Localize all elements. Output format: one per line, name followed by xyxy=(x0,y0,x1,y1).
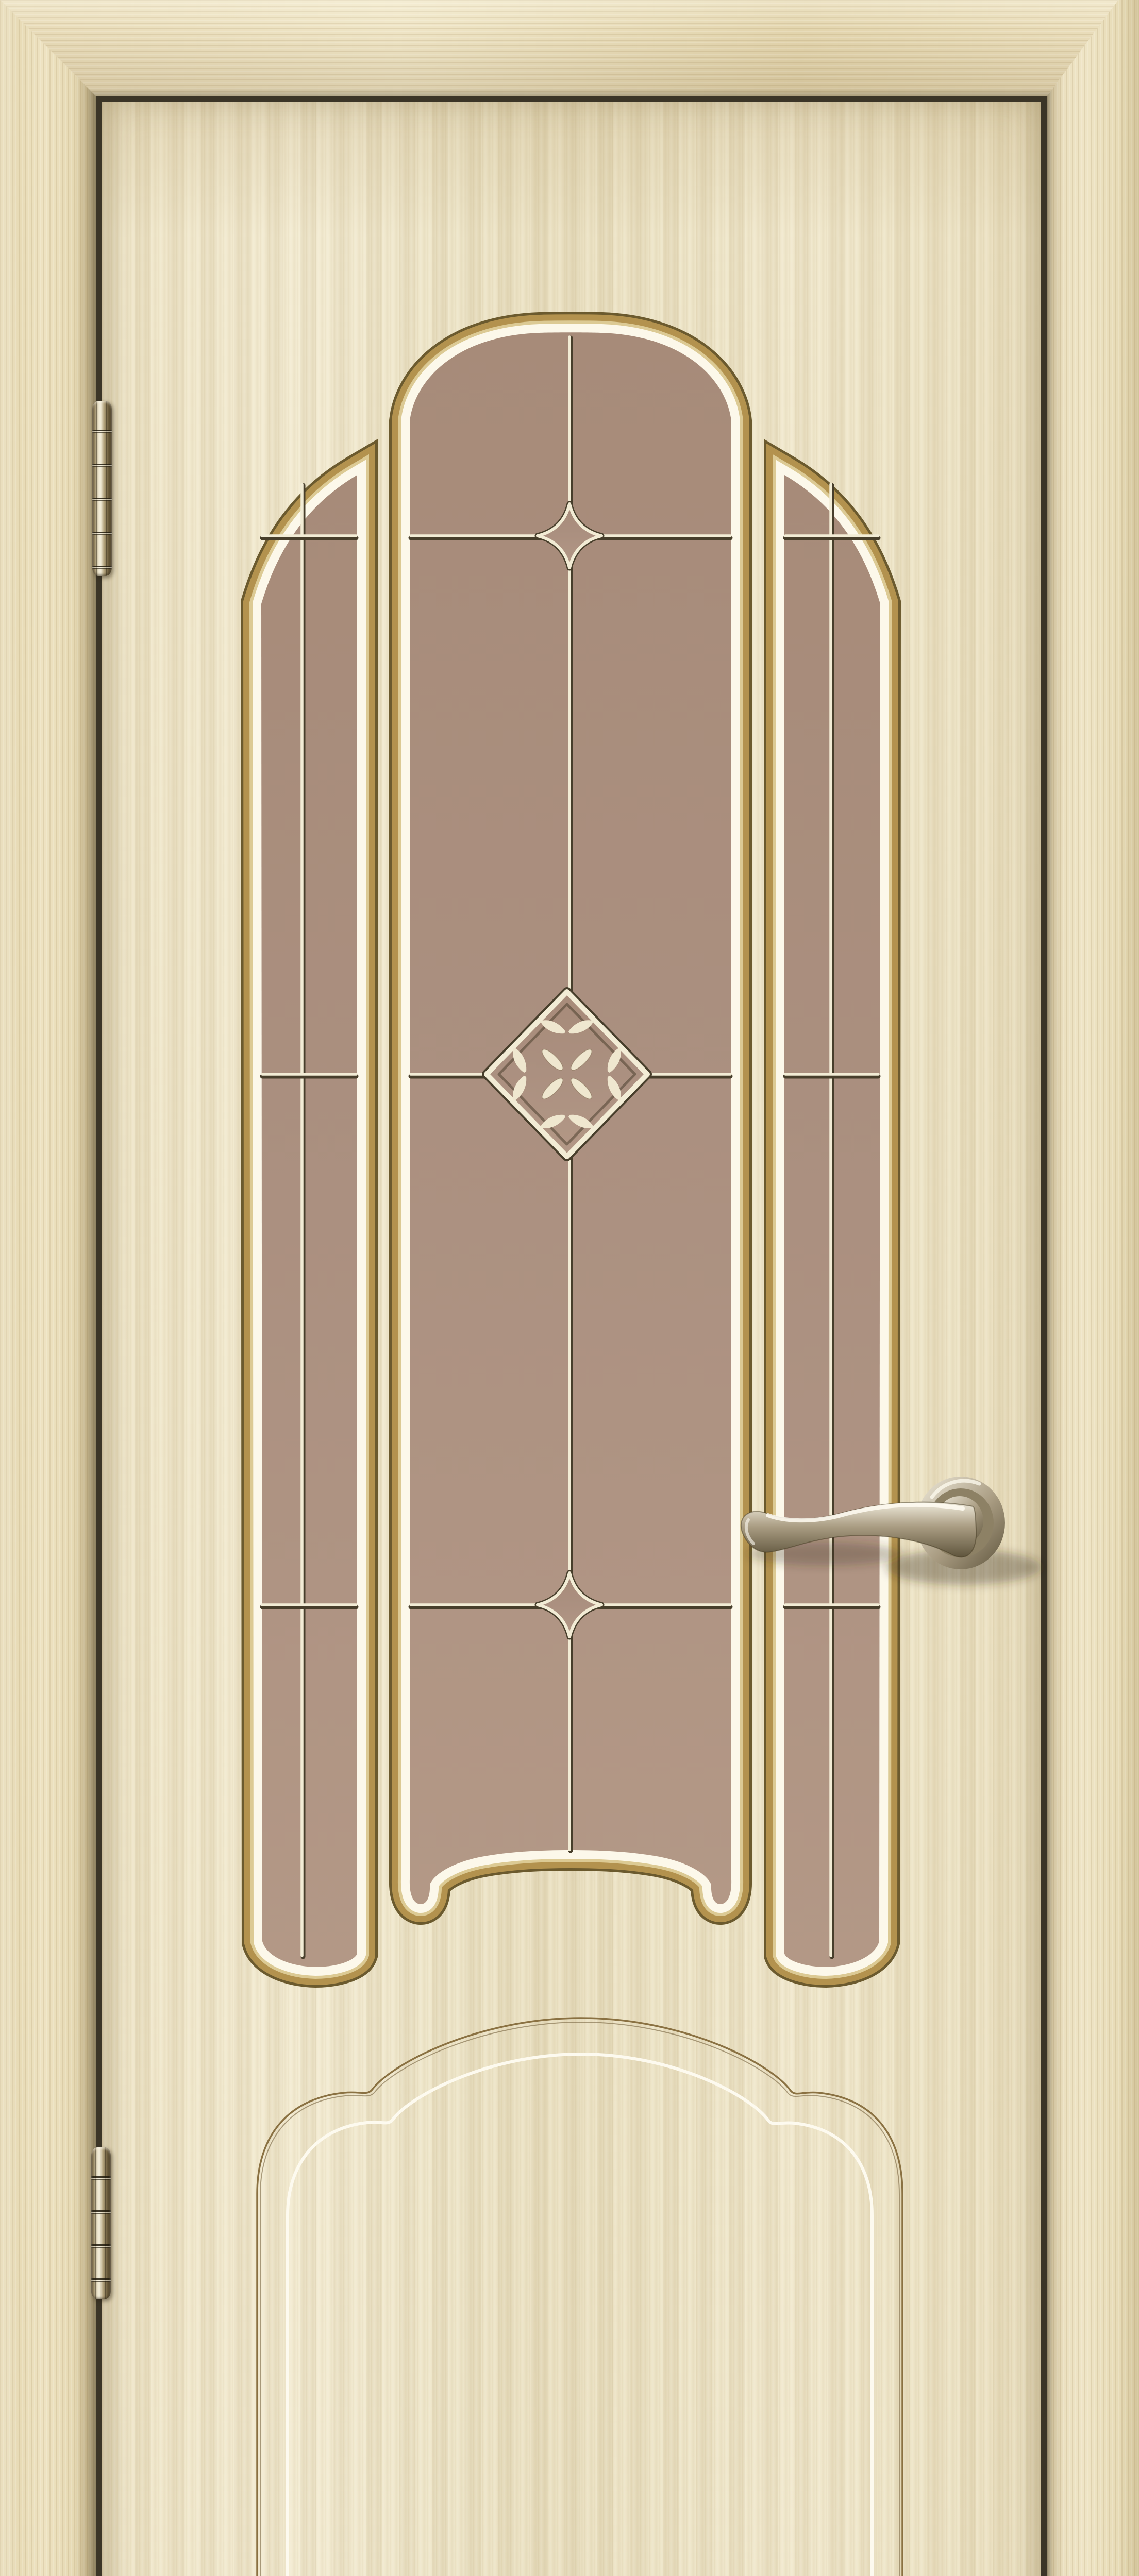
door-frame-head xyxy=(0,0,1139,96)
door-leaf xyxy=(102,102,1041,2576)
door-hinge-bottom xyxy=(91,2147,111,2299)
door-hinge-top xyxy=(92,401,112,576)
door-product-photo xyxy=(0,0,1139,2576)
door-frame-left-jamb xyxy=(0,0,96,2576)
door-frame-right-jamb xyxy=(1047,0,1139,2576)
